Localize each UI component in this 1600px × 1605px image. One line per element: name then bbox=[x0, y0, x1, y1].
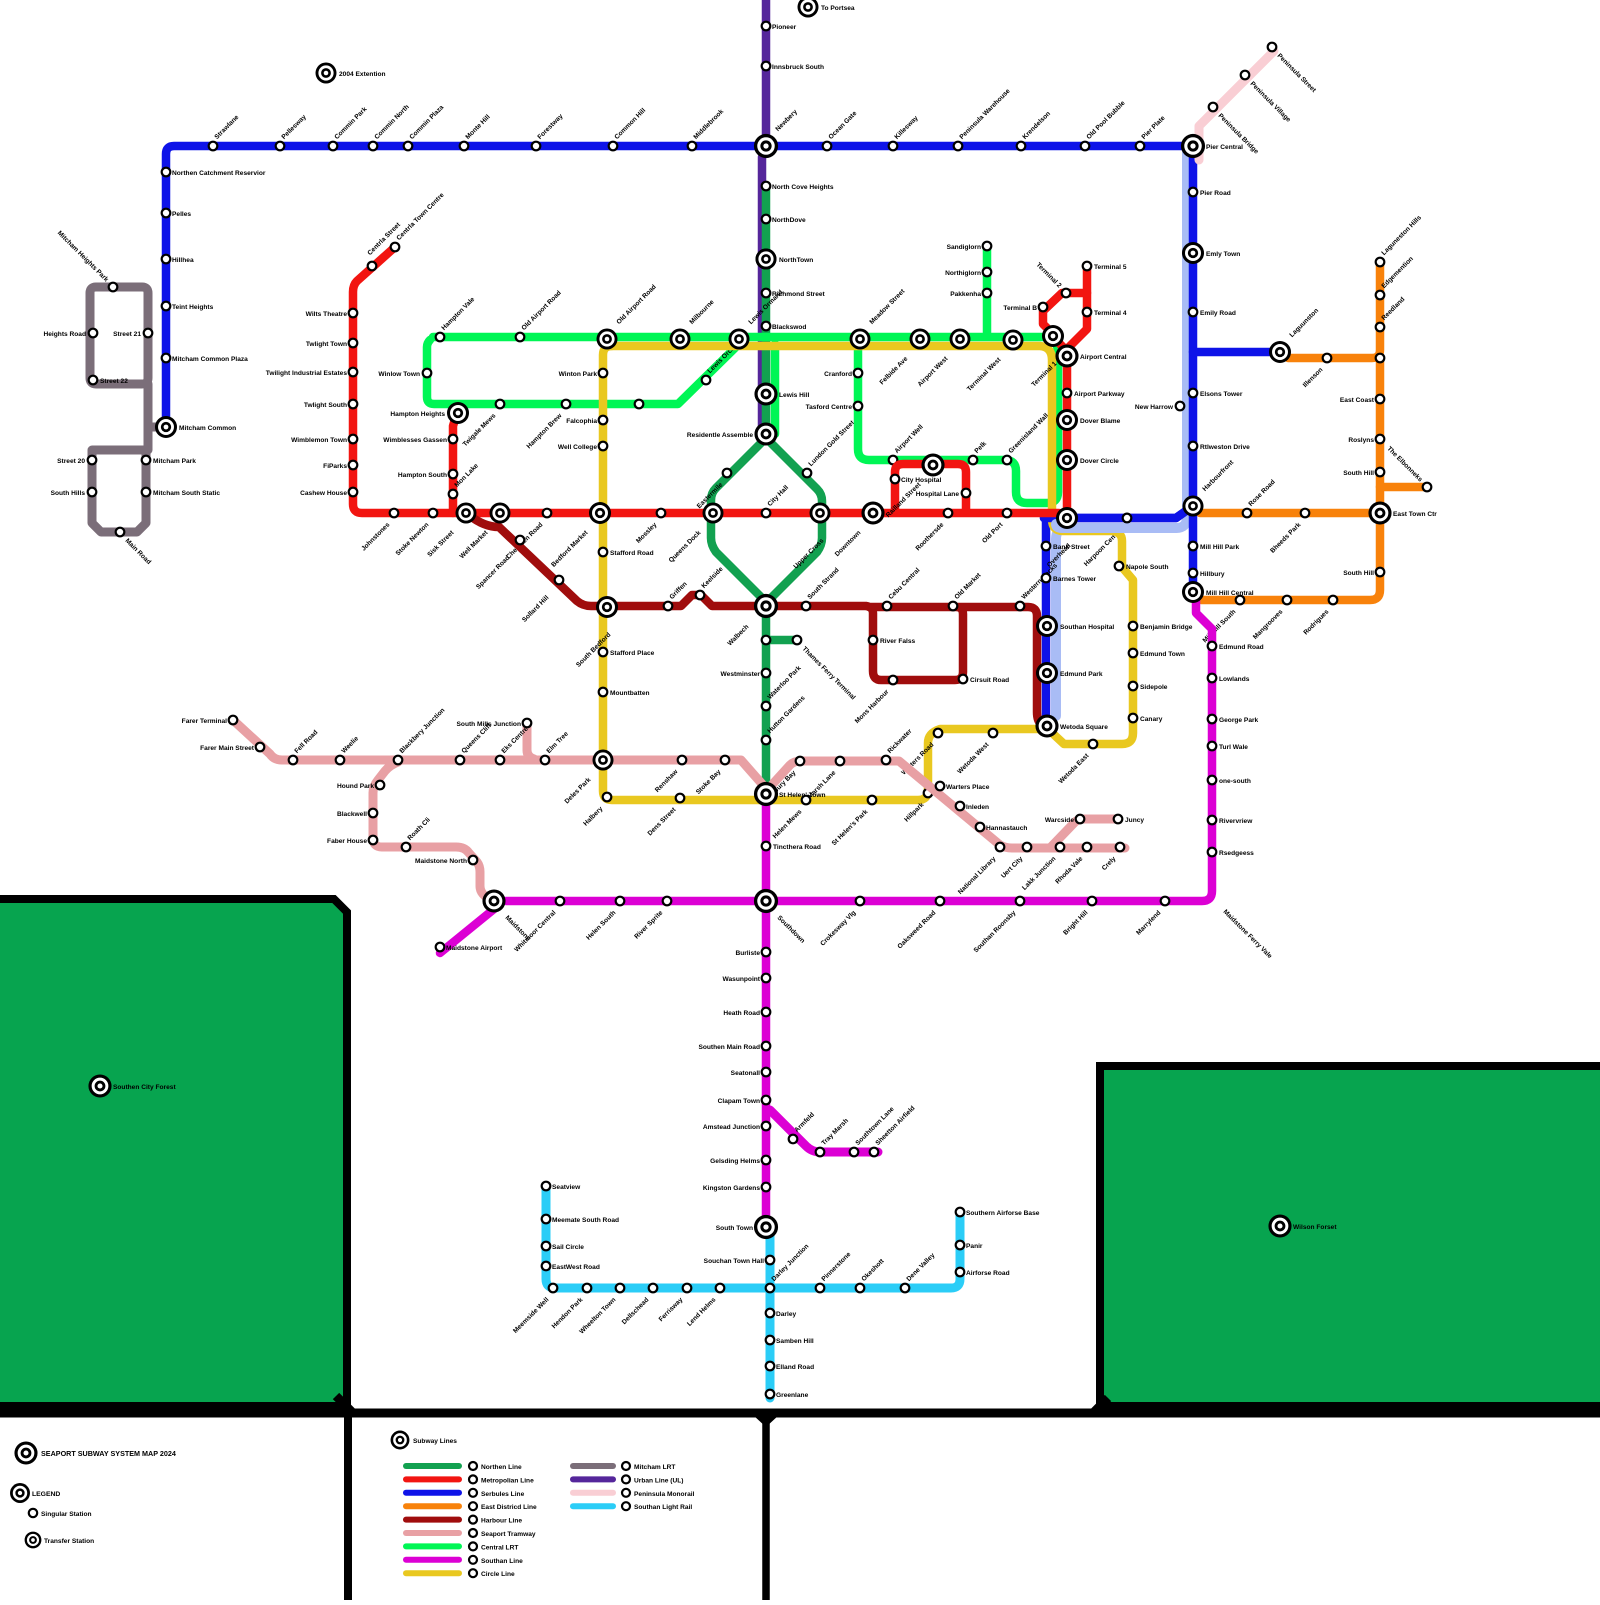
svg-text:Sail Circle: Sail Circle bbox=[552, 1244, 584, 1251]
svg-text:Mitcham Common Plaza: Mitcham Common Plaza bbox=[172, 356, 248, 363]
svg-text:Westminster: Westminster bbox=[721, 671, 761, 678]
svg-text:East Districd Line: East Districd Line bbox=[481, 1504, 537, 1511]
svg-text:Meemate South Road: Meemate South Road bbox=[552, 1217, 619, 1224]
svg-text:SEAPORT SUBWAY SYSTEM MAP 2024: SEAPORT SUBWAY SYSTEM MAP 2024 bbox=[41, 1449, 176, 1458]
svg-text:Southen City Forest: Southen City Forest bbox=[113, 1084, 176, 1091]
svg-text:Rivervriew: Rivervriew bbox=[1219, 818, 1253, 825]
svg-text:Mitcham Common: Mitcham Common bbox=[179, 425, 236, 432]
svg-text:Winlow Town: Winlow Town bbox=[378, 371, 420, 378]
svg-text:Street 22: Street 22 bbox=[100, 378, 128, 385]
svg-text:Benjamin Bridge: Benjamin Bridge bbox=[1140, 624, 1193, 631]
svg-text:Hampton Heights: Hampton Heights bbox=[390, 411, 445, 418]
svg-text:Southan Line: Southan Line bbox=[481, 1558, 523, 1565]
svg-text:Turl Wale: Turl Wale bbox=[1219, 744, 1248, 751]
svg-text:Stafford Road: Stafford Road bbox=[610, 550, 654, 557]
svg-text:Barnes Tower: Barnes Tower bbox=[1053, 576, 1097, 583]
svg-text:Twlight South: Twlight South bbox=[304, 402, 347, 409]
svg-text:Warters Place: Warters Place bbox=[946, 784, 990, 791]
svg-text:Subway Lines: Subway Lines bbox=[413, 1438, 457, 1445]
svg-text:St Helen' Town: St Helen' Town bbox=[779, 792, 826, 799]
svg-text:Southen Main Road: Southen Main Road bbox=[698, 1044, 760, 1051]
svg-text:Airport Central: Airport Central bbox=[1080, 354, 1127, 361]
svg-text:Southern Airforse Base: Southern Airforse Base bbox=[966, 1210, 1040, 1217]
svg-text:Mill Hill Park: Mill Hill Park bbox=[1200, 544, 1240, 551]
svg-text:South Hills: South Hills bbox=[51, 490, 86, 497]
svg-text:South Mills Junction: South Mills Junction bbox=[457, 721, 521, 728]
svg-text:Stafford Place: Stafford Place bbox=[610, 650, 655, 657]
svg-text:Mill Hill Central: Mill Hill Central bbox=[1206, 590, 1254, 597]
svg-text:Transfer Station: Transfer Station bbox=[44, 1538, 94, 1545]
svg-text:Hannastauch: Hannastauch bbox=[986, 825, 1027, 832]
svg-text:Heights Road: Heights Road bbox=[44, 331, 87, 338]
svg-text:Southan Light Rail: Southan Light Rail bbox=[634, 1504, 692, 1511]
svg-text:Clapam Town: Clapam Town bbox=[718, 1098, 760, 1105]
svg-text:FiParks: FiParks bbox=[323, 463, 347, 470]
svg-text:Kingston Gardens: Kingston Gardens bbox=[703, 1185, 760, 1192]
svg-text:Street 21: Street 21 bbox=[113, 331, 141, 338]
svg-text:Wilts Theatre: Wilts Theatre bbox=[306, 311, 348, 318]
svg-text:Pier Road: Pier Road bbox=[1200, 190, 1231, 197]
svg-text:Rtlweston Drive: Rtlweston Drive bbox=[1200, 444, 1250, 451]
svg-text:New Harrow: New Harrow bbox=[1135, 404, 1174, 411]
svg-text:Dover Blame: Dover Blame bbox=[1080, 418, 1121, 425]
svg-text:Sidepole: Sidepole bbox=[1140, 684, 1168, 691]
svg-text:NorthTown: NorthTown bbox=[779, 257, 813, 264]
svg-text:Elland Road: Elland Road bbox=[776, 1364, 814, 1371]
svg-text:Airport Parkway: Airport Parkway bbox=[1074, 391, 1125, 398]
svg-text:Maidstone Airport: Maidstone Airport bbox=[446, 945, 503, 952]
svg-text:Edmund Park: Edmund Park bbox=[1060, 671, 1103, 678]
svg-text:Terminal 4: Terminal 4 bbox=[1094, 310, 1127, 317]
svg-text:Edmund Road: Edmund Road bbox=[1219, 644, 1264, 651]
svg-text:Wimblemon Town: Wimblemon Town bbox=[291, 437, 347, 444]
svg-text:Panir: Panir bbox=[966, 1243, 983, 1250]
svg-text:Harbour Line: Harbour Line bbox=[481, 1518, 522, 1525]
svg-text:Terminal B: Terminal B bbox=[1003, 305, 1037, 312]
svg-text:Twlight Town: Twlight Town bbox=[306, 341, 347, 348]
svg-text:Well College: Well College bbox=[558, 444, 597, 451]
svg-text:Wimblesses Gassen: Wimblesses Gassen bbox=[383, 437, 447, 444]
svg-text:Mitcham LRT: Mitcham LRT bbox=[634, 1464, 675, 1471]
svg-text:South Hill: South Hill bbox=[1343, 470, 1374, 477]
svg-text:Winton Park: Winton Park bbox=[559, 371, 598, 378]
svg-text:EastWest Road: EastWest Road bbox=[552, 1264, 600, 1271]
svg-text:Cashew House: Cashew House bbox=[300, 490, 347, 497]
svg-text:Warcside: Warcside bbox=[1045, 817, 1074, 824]
svg-text:Southan Hospital: Southan Hospital bbox=[1060, 624, 1114, 631]
svg-text:Northen Catchment Reservior: Northen Catchment Reservior bbox=[172, 170, 266, 177]
svg-text:2004 Extention: 2004 Extention bbox=[339, 71, 386, 78]
svg-text:Lowlands: Lowlands bbox=[1219, 676, 1250, 683]
svg-text:Peninsula Monorail: Peninsula Monorail bbox=[634, 1491, 695, 1498]
svg-text:Gelsding Helms: Gelsding Helms bbox=[710, 1158, 760, 1165]
svg-text:River Falss: River Falss bbox=[880, 638, 916, 645]
svg-text:Tasford Centre: Tasford Centre bbox=[806, 404, 853, 411]
svg-text:Canary: Canary bbox=[1140, 716, 1163, 723]
svg-text:NorthDove: NorthDove bbox=[772, 217, 806, 224]
svg-text:Rsedgeess: Rsedgeess bbox=[1219, 850, 1254, 857]
svg-text:Hillhea: Hillhea bbox=[172, 257, 194, 264]
svg-text:Tincthera Road: Tincthera Road bbox=[773, 844, 821, 851]
svg-text:Souchan Town Hall: Souchan Town Hall bbox=[704, 1258, 764, 1265]
svg-text:Sandiglorn: Sandiglorn bbox=[947, 244, 981, 251]
svg-text:Seaport Tramway: Seaport Tramway bbox=[481, 1531, 536, 1538]
svg-text:Farer Terminal: Farer Terminal bbox=[182, 718, 227, 725]
svg-text:Northiglorn: Northiglorn bbox=[945, 270, 981, 277]
svg-text:Pelles: Pelles bbox=[172, 211, 191, 218]
svg-text:Roslyns: Roslyns bbox=[1348, 437, 1374, 444]
svg-text:Seatview: Seatview bbox=[552, 1184, 581, 1191]
svg-text:Juncy: Juncy bbox=[1125, 817, 1144, 824]
svg-text:Cranford: Cranford bbox=[824, 371, 852, 378]
svg-text:Pioneer: Pioneer bbox=[772, 24, 797, 31]
svg-text:Central LRT: Central LRT bbox=[481, 1544, 518, 1551]
svg-text:Serbules Line: Serbules Line bbox=[481, 1491, 525, 1498]
svg-text:Mitcham South Static: Mitcham South Static bbox=[153, 490, 220, 497]
svg-text:Twilight Industrial Estates: Twilight Industrial Estates bbox=[266, 370, 348, 377]
svg-text:Innsbruck South: Innsbruck South bbox=[772, 64, 824, 71]
svg-text:South Town: South Town bbox=[716, 1225, 753, 1232]
svg-text:Terminal 5: Terminal 5 bbox=[1094, 264, 1127, 271]
svg-text:Inleden: Inleden bbox=[966, 804, 989, 811]
svg-text:Singular Station: Singular Station bbox=[41, 1511, 92, 1518]
svg-text:Falcophia: Falcophia bbox=[566, 418, 597, 425]
svg-text:East Town Ctr: East Town Ctr bbox=[1393, 511, 1437, 518]
svg-text:Hillbury: Hillbury bbox=[1200, 571, 1225, 578]
svg-text:Hound Park: Hound Park bbox=[337, 783, 374, 790]
svg-text:Darley: Darley bbox=[776, 1311, 796, 1318]
svg-text:George Park: George Park bbox=[1219, 717, 1259, 724]
svg-text:North Cove Heights: North Cove Heights bbox=[772, 184, 834, 191]
svg-text:Residentle Assemble: Residentle Assemble bbox=[687, 432, 753, 439]
svg-text:Maidstone North: Maidstone North bbox=[415, 858, 467, 865]
svg-text:Emily Road: Emily Road bbox=[1200, 310, 1236, 317]
svg-text:Samben Hill: Samben Hill bbox=[776, 1338, 814, 1345]
svg-text:Napole South: Napole South bbox=[1126, 564, 1169, 571]
svg-text:Blackswod: Blackswod bbox=[772, 324, 806, 331]
svg-text:Burliste: Burliste bbox=[735, 950, 760, 957]
svg-text:Pakkenha: Pakkenha bbox=[950, 291, 981, 298]
svg-text:Emly Town: Emly Town bbox=[1206, 251, 1240, 258]
svg-text:Wetoda Square: Wetoda Square bbox=[1060, 724, 1108, 731]
svg-text:Amstead Junction: Amstead Junction bbox=[703, 1124, 760, 1131]
svg-text:South Hill: South Hill bbox=[1343, 570, 1374, 577]
svg-text:Bank Street: Bank Street bbox=[1053, 544, 1090, 551]
svg-text:LEGEND: LEGEND bbox=[32, 1491, 60, 1498]
svg-text:To Portsea: To Portsea bbox=[821, 5, 855, 12]
svg-text:Faber House: Faber House bbox=[327, 838, 367, 845]
svg-text:Wilson Forset: Wilson Forset bbox=[1293, 1224, 1337, 1231]
svg-text:Mountbatten: Mountbatten bbox=[610, 690, 650, 697]
svg-text:one-south: one-south bbox=[1219, 778, 1251, 785]
svg-text:Urban Line (UL): Urban Line (UL) bbox=[634, 1477, 683, 1484]
svg-text:Hampton South: Hampton South bbox=[398, 472, 447, 479]
svg-text:Blackwell: Blackwell bbox=[337, 811, 367, 818]
svg-text:Elsons Tower: Elsons Tower bbox=[1200, 391, 1243, 398]
svg-text:Seatonall: Seatonall bbox=[731, 1070, 760, 1077]
svg-text:East Coast: East Coast bbox=[1340, 397, 1375, 404]
svg-text:Pier Central: Pier Central bbox=[1206, 144, 1243, 151]
svg-text:Farer Main Street: Farer Main Street bbox=[200, 745, 255, 752]
svg-text:Airforse Road: Airforse Road bbox=[966, 1270, 1010, 1277]
svg-text:City Hospital: City Hospital bbox=[901, 477, 941, 484]
svg-text:Metropolian Line: Metropolian Line bbox=[481, 1477, 534, 1484]
svg-text:Lewis Hill: Lewis Hill bbox=[779, 392, 810, 399]
svg-text:Circle Line: Circle Line bbox=[481, 1571, 515, 1578]
svg-text:Cirsuit Road: Cirsuit Road bbox=[970, 677, 1009, 684]
svg-text:Greenlane: Greenlane bbox=[776, 1392, 809, 1399]
svg-text:Street 20: Street 20 bbox=[57, 458, 85, 465]
svg-text:Hospital Lane: Hospital Lane bbox=[916, 491, 960, 498]
svg-text:Mitcham Park: Mitcham Park bbox=[153, 458, 196, 465]
svg-text:Wasunpoint: Wasunpoint bbox=[723, 976, 761, 983]
svg-text:Edmund Town: Edmund Town bbox=[1140, 651, 1185, 658]
svg-text:Northen Line: Northen Line bbox=[481, 1464, 522, 1471]
svg-text:Dover Circle: Dover Circle bbox=[1080, 458, 1119, 465]
svg-text:Teint Heights: Teint Heights bbox=[172, 304, 214, 311]
svg-text:Heath Road: Heath Road bbox=[723, 1010, 760, 1017]
